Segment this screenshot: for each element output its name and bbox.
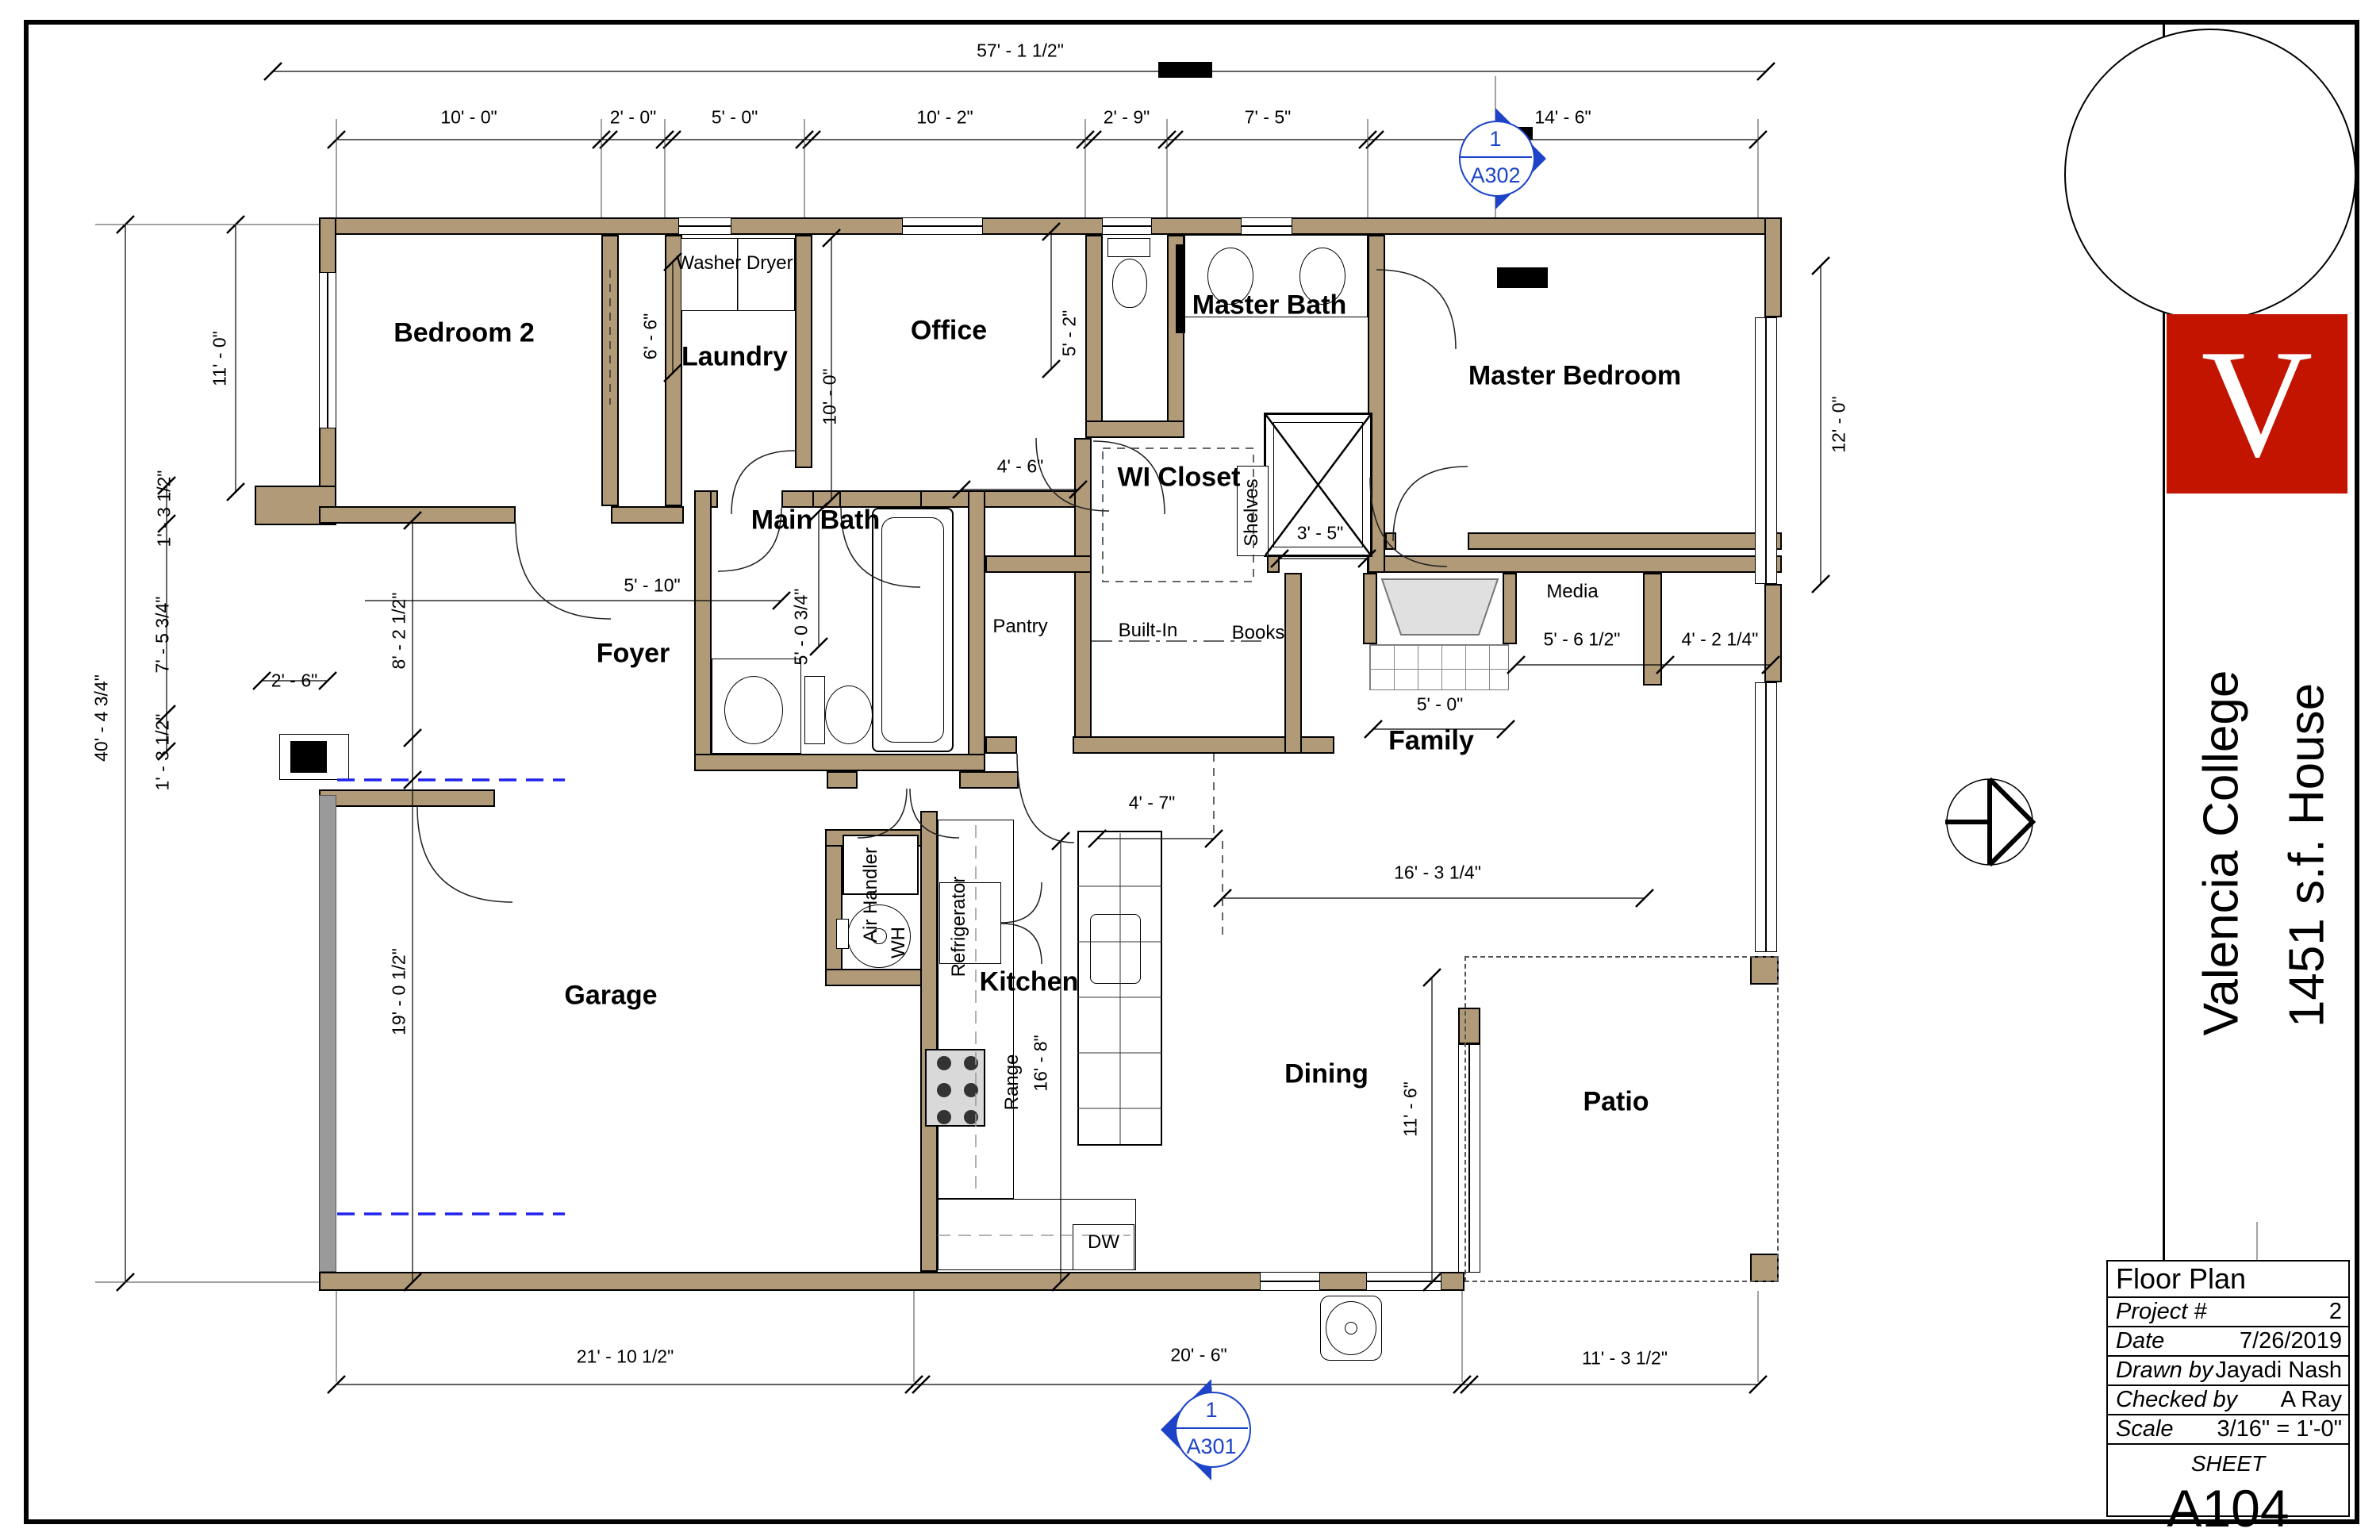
range-burner: [937, 1083, 951, 1097]
label-refrigerator: Refrigerator: [948, 877, 970, 977]
dim-left-2-6: 2' - 6": [271, 670, 318, 692]
dim-left-11-0: 11' - 0": [209, 331, 231, 386]
door-swing-arc: [1393, 467, 1468, 541]
dim-6-6: 6' - 6": [640, 313, 662, 360]
dim-4-2-1-4: 4' - 2 1/4": [1682, 629, 1759, 651]
label-built-in: Built-In: [1119, 620, 1178, 642]
room-kitchen: Kitchen: [980, 967, 1079, 998]
door-swing-arc: [910, 789, 959, 838]
label-dw: DW: [1088, 1231, 1119, 1254]
room-main-bath: Main Bath: [751, 505, 880, 536]
room-wi-closet: WI Closet: [1118, 463, 1241, 493]
dim-3-5: 3' - 5": [1297, 523, 1344, 544]
garage-header-dashed-lines: [337, 780, 565, 1214]
label-air-handler: Air Handler: [860, 847, 882, 943]
dim-top-4: 10' - 2": [916, 107, 973, 129]
section-top-number: 1: [1459, 127, 1532, 152]
section-top-sheet: A302: [1459, 163, 1532, 188]
section-bottom-sheet: A301: [1175, 1434, 1248, 1459]
room-family: Family: [1388, 726, 1474, 757]
room-dining: Dining: [1284, 1059, 1368, 1090]
door-swing-arc: [858, 789, 907, 838]
label-washer-dryer: Washer Dryer: [676, 252, 793, 275]
room-office: Office: [911, 316, 987, 347]
dim-overall-top: 57' - 1 1/2": [977, 40, 1064, 62]
label-books: Books: [1232, 622, 1285, 644]
dim-top-1: 10' - 0": [440, 107, 497, 129]
dim-5-2: 5' - 2": [1059, 310, 1081, 357]
label-shelves: Shelves: [1241, 478, 1263, 546]
door-swing-arc: [1370, 478, 1447, 566]
label-range: Range: [1001, 1054, 1023, 1111]
dim-left-1-3h-a: 1' - 3 1/2": [154, 470, 175, 547]
dim-top-3: 5' - 0": [712, 107, 758, 129]
dim-bottom-20: 20' - 6": [1170, 1345, 1226, 1366]
door-swing-arc: [1017, 754, 1074, 843]
dim-top-6: 7' - 5": [1245, 107, 1292, 129]
dim-5-10: 5' - 10": [624, 575, 680, 597]
range-burner: [937, 1056, 951, 1070]
room-laundry: Laundry: [681, 342, 788, 373]
label-pantry: Pantry: [992, 616, 1047, 638]
dimension-linework: [0, 0, 2380, 1540]
dim-left-19-0: 19' - 0 1/2": [389, 948, 410, 1035]
section-bottom-number: 1: [1175, 1398, 1248, 1423]
door-swing-arc: [516, 524, 611, 619]
dim-16-3-1-4: 16' - 3 1/4": [1394, 862, 1481, 884]
door-swing-arc: [1001, 882, 1042, 923]
door-swing-arc: [1376, 270, 1456, 349]
dim-right-12-0: 12' - 0": [1829, 396, 1850, 452]
dim-left-1-3h-b: 1' - 3 1/2": [152, 714, 174, 791]
dim-top-5: 2' - 9": [1104, 107, 1150, 129]
room-master-bath: Master Bath: [1192, 290, 1347, 321]
dim-laundry-10-0: 10' - 0": [820, 368, 841, 424]
dim-bottom-11: 11' - 3 1/2": [1582, 1348, 1668, 1369]
fireplace-firebox: [1382, 579, 1498, 635]
room-bedroom-2: Bedroom 2: [393, 318, 535, 349]
dim-top-2: 2' - 0": [610, 107, 657, 129]
door-swing-arc: [1001, 924, 1042, 964]
dim-left-overall: 40' - 4 3/4": [91, 674, 113, 762]
dim-5-0-3-4: 5' - 0 3/4": [791, 589, 812, 666]
floor-plan-sheet: 1 A302 1 A301 Bedroom 2OfficeMaster Bath…: [0, 0, 2380, 1540]
dim-16-8: 16' - 8": [1031, 1035, 1052, 1091]
room-foyer: Foyer: [597, 639, 670, 670]
dim-family-5-0: 5' - 0": [1417, 694, 1464, 716]
dim-bottom-21: 21' - 10 1/2": [577, 1346, 674, 1368]
door-swing-arc: [1036, 438, 1109, 511]
dim-left-8-2: 8' - 2 1/2": [389, 593, 410, 670]
dim-left-7-5: 7' - 5 3/4": [152, 597, 174, 674]
dim-11-6: 11' - 6": [1400, 1081, 1422, 1137]
label-media: Media: [1546, 581, 1598, 603]
dim-4-7: 4' - 7": [1129, 793, 1176, 814]
north-arrow-icon: [1945, 779, 2033, 865]
dim-5-6-1-2: 5' - 6 1/2": [1544, 629, 1621, 651]
door-swing-arc: [417, 807, 512, 902]
label-wh: WH: [888, 927, 910, 958]
room-garage: Garage: [564, 981, 657, 1012]
room-patio: Patio: [1583, 1087, 1649, 1118]
dim-4-6: 4' - 6": [997, 456, 1044, 478]
room-master-bedroom: Master Bedroom: [1468, 361, 1681, 392]
range-burner: [937, 1110, 951, 1124]
